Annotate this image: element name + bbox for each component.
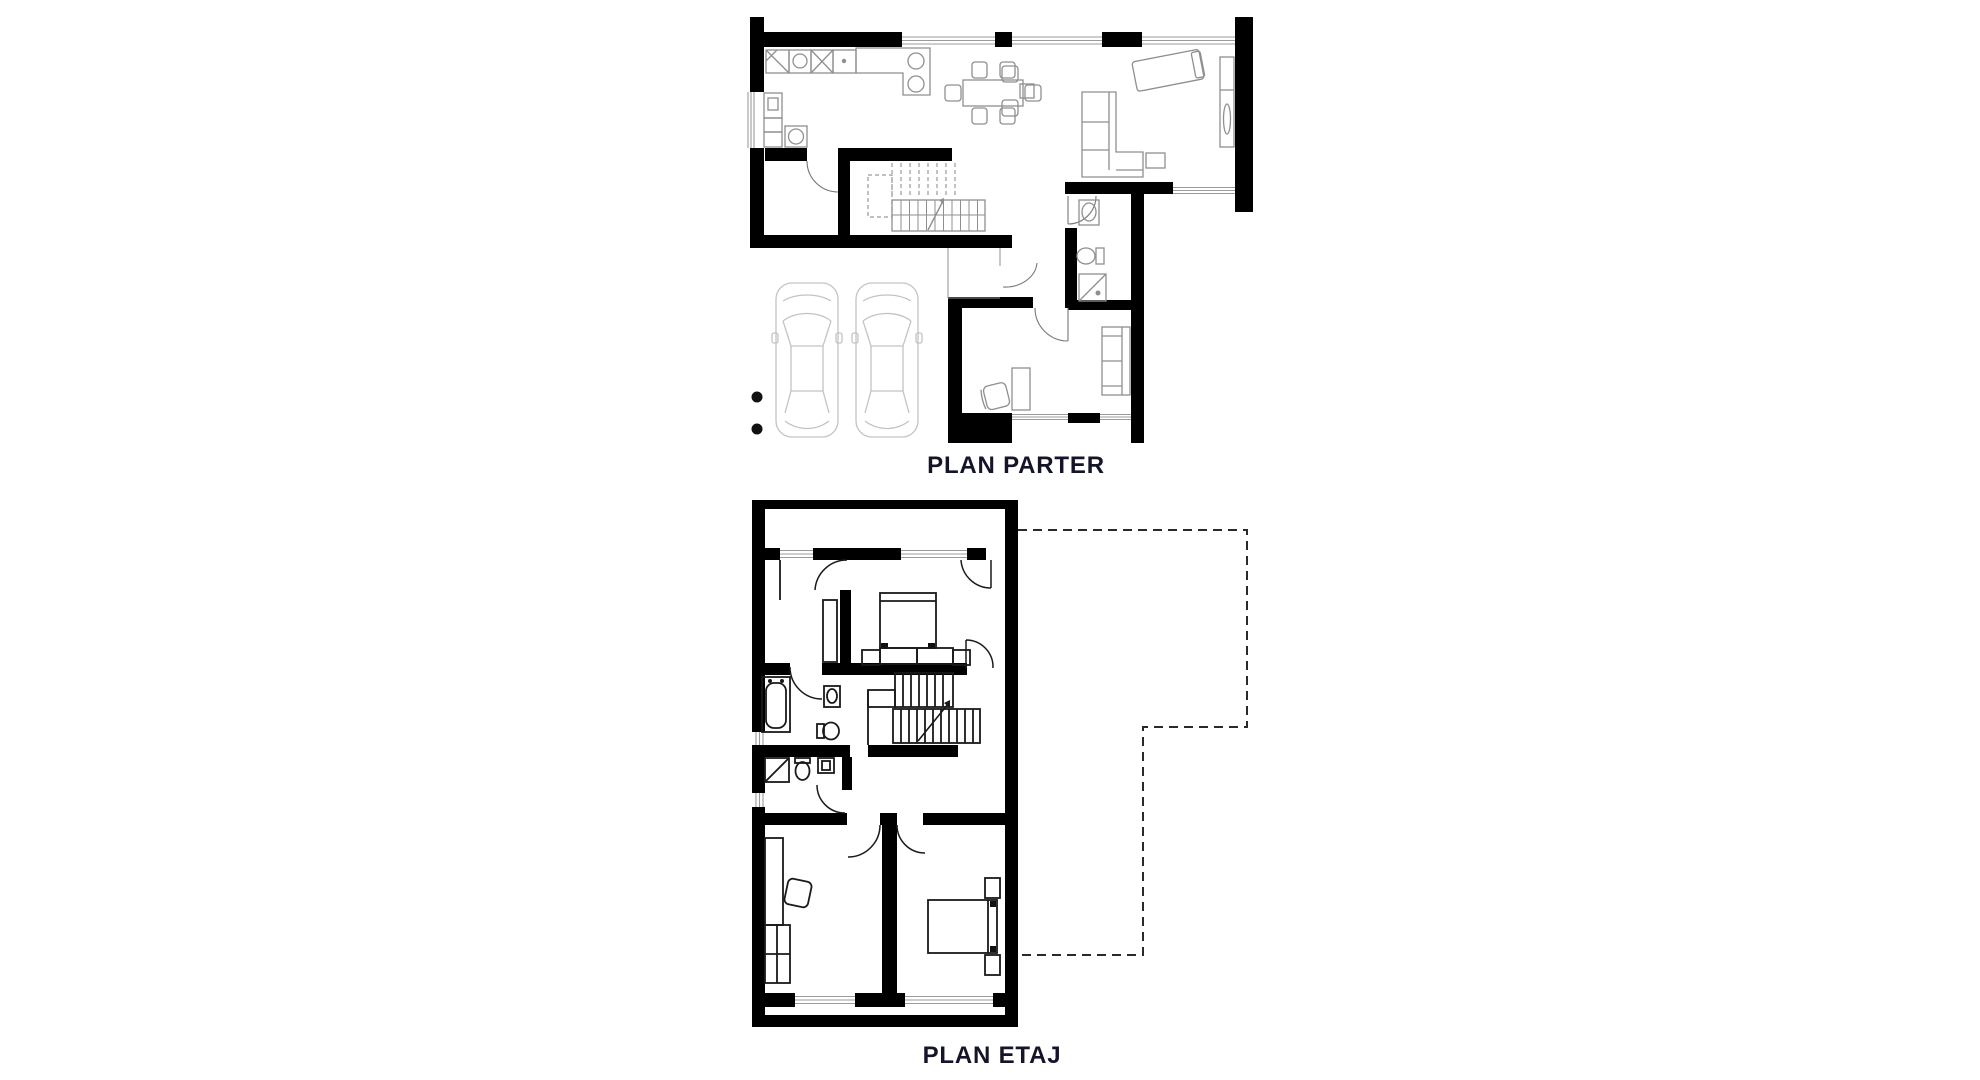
parter-windows (748, 37, 1235, 420)
master-bedroom (862, 593, 970, 665)
etaj-windows (756, 551, 993, 1004)
bed-icon (880, 593, 936, 649)
cooktop-icon (908, 53, 924, 69)
toilet-icon (817, 723, 839, 740)
chair-icon (784, 878, 813, 908)
toilet-icon (795, 758, 810, 780)
chair-icon (972, 62, 987, 78)
stairs-icon (868, 673, 980, 745)
bench-icon (880, 648, 917, 664)
shower-icon (1079, 274, 1106, 301)
carport (752, 283, 923, 437)
parter-walls (750, 17, 1253, 443)
column-dot-icon (752, 392, 763, 403)
dressing-room (780, 560, 837, 662)
wardrobe-icon (823, 600, 837, 662)
parter-bathroom (1077, 200, 1106, 301)
floor-plan-drawing (0, 0, 1980, 1080)
nightstand-icon (985, 955, 1000, 975)
nightstand-icon (985, 878, 1000, 898)
entry-vestibule (948, 248, 1000, 298)
side-table-icon (1146, 153, 1165, 168)
kitchen-counter-icon (764, 48, 930, 147)
shower-icon (765, 758, 789, 782)
office-chair-icon (980, 382, 1011, 412)
nightstand-icon (953, 650, 970, 665)
sink-icon (793, 54, 807, 68)
plan-parter-title: PLAN PARTER (900, 452, 1132, 480)
bedroom-right (928, 878, 1000, 975)
floor-plan-sheet: PLAN PARTER PLAN ETAJ (0, 0, 1980, 1080)
sink-icon (818, 758, 834, 773)
bedroom-left (765, 838, 812, 983)
car-icon (772, 283, 842, 437)
plan-etaj-title: PLAN ETAJ (876, 1042, 1108, 1070)
bed-icon (928, 900, 997, 953)
daybed-icon (1132, 49, 1205, 92)
sofa-icon (1102, 327, 1130, 395)
nightstand-icon (862, 650, 880, 665)
chair-icon (972, 108, 987, 124)
sofa-icon (1082, 92, 1143, 177)
etaj-walls (752, 500, 1018, 1027)
plan-parter-drawing (748, 17, 1253, 443)
toilet-icon (1077, 248, 1104, 264)
office-furniture (980, 327, 1130, 411)
wardrobe-icon (765, 925, 790, 983)
bench-icon (917, 648, 953, 664)
stairs-icon (868, 163, 985, 231)
wc-room (765, 758, 834, 782)
car-icon (852, 283, 922, 437)
column-dot-icon (752, 424, 763, 435)
living-room-furniture (1002, 49, 1234, 177)
dining-table-icon (945, 62, 1041, 124)
side-table-icon (1020, 84, 1034, 98)
dashed-footprint-outline (1018, 530, 1247, 955)
chair-icon (945, 85, 961, 101)
desk-icon (1012, 368, 1030, 410)
sink-icon (824, 686, 840, 707)
plan-etaj-drawing (752, 500, 1247, 1027)
bathtub-icon (762, 677, 790, 732)
desk-icon (765, 838, 783, 925)
etaj-bathroom (762, 677, 840, 740)
